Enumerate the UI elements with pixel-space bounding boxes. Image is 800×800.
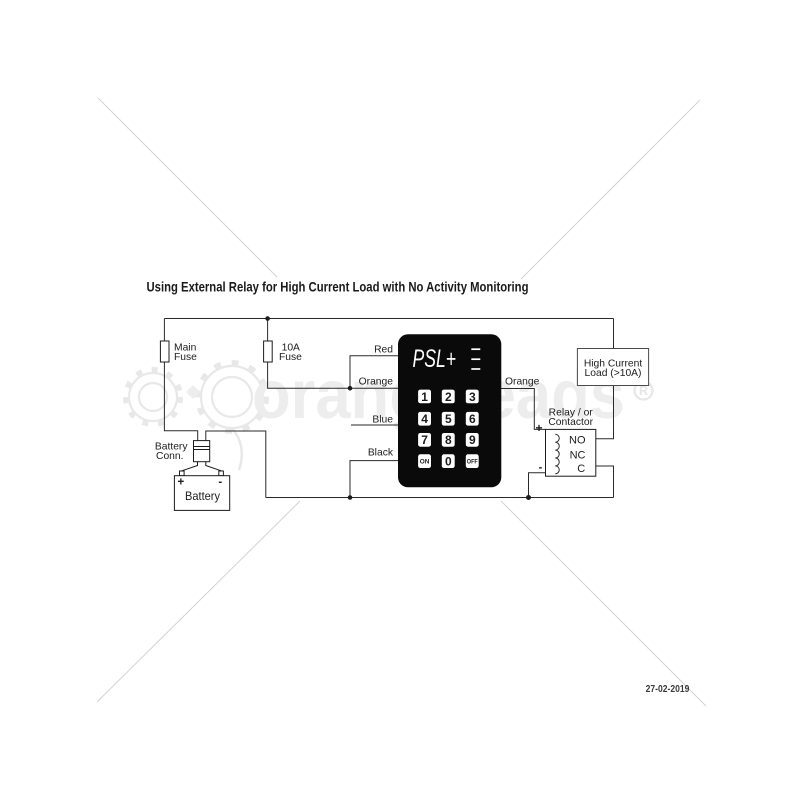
svg-text:C: C (577, 463, 585, 475)
svg-text:ON: ON (420, 459, 430, 466)
svg-text:Black: Black (368, 448, 394, 459)
svg-text:-: - (539, 462, 543, 474)
svg-text:PSL+: PSL+ (413, 345, 457, 373)
svg-text:7: 7 (421, 433, 428, 447)
svg-text:Using External Relay for High: Using External Relay for High Current Lo… (147, 279, 529, 295)
svg-text:NC: NC (570, 449, 586, 461)
svg-text:8: 8 (445, 433, 452, 447)
svg-text:Contactor: Contactor (548, 417, 593, 428)
svg-text:1: 1 (421, 390, 428, 404)
svg-text:R: R (639, 384, 648, 398)
svg-text:Conn.: Conn. (156, 451, 183, 462)
svg-text:2: 2 (445, 390, 452, 404)
svg-text:Blue: Blue (372, 414, 393, 425)
svg-text:-: - (218, 477, 222, 489)
svg-text:Fuse: Fuse (174, 352, 197, 363)
svg-text:5: 5 (445, 412, 452, 426)
svg-text:3: 3 (469, 390, 476, 404)
svg-text:+: + (535, 421, 542, 435)
svg-text:Orange: Orange (359, 376, 394, 387)
svg-text:Red: Red (374, 345, 393, 356)
svg-text:NO: NO (569, 435, 586, 447)
svg-text:6: 6 (469, 412, 476, 426)
svg-text:Orange: Orange (505, 376, 540, 387)
svg-text:Load (>10A): Load (>10A) (585, 368, 642, 379)
svg-text:9: 9 (469, 433, 476, 447)
svg-text:0: 0 (445, 454, 452, 468)
svg-text:Fuse: Fuse (279, 352, 302, 363)
svg-text:27-02-2019: 27-02-2019 (646, 684, 690, 695)
svg-text:4: 4 (421, 412, 428, 426)
svg-text:+: + (177, 477, 184, 489)
svg-text:Battery: Battery (185, 489, 221, 503)
svg-text:OFF: OFF (467, 459, 478, 466)
